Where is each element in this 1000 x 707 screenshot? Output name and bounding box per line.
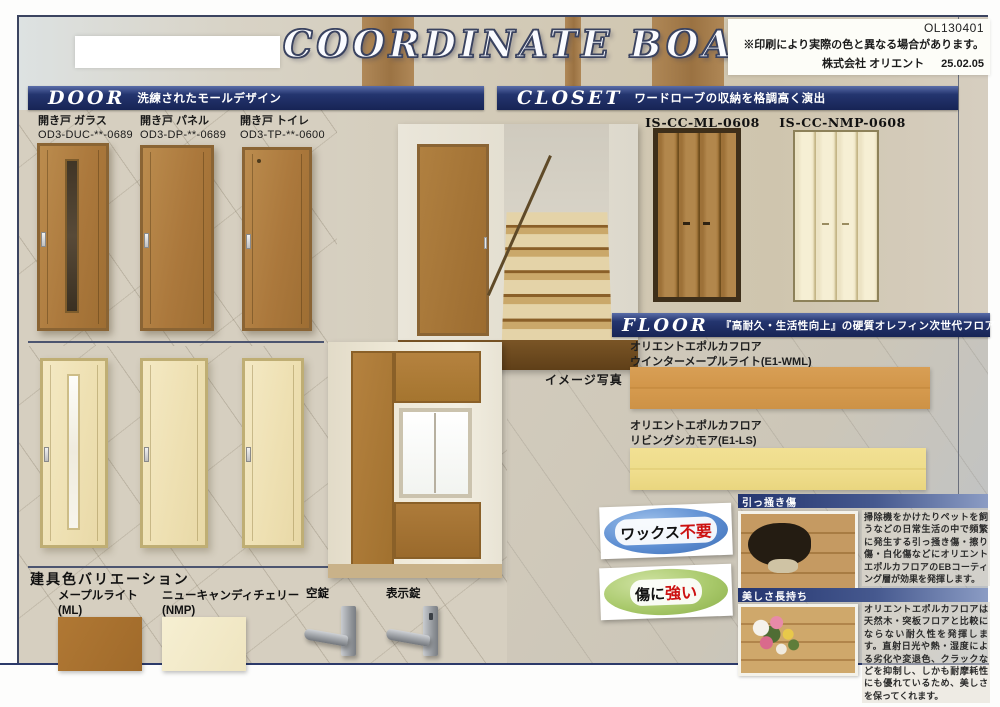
feature-text-scratch: 掃除機をかけたりペットを飼うなどの日常生活の中で頻繁に発生する引っ掻き傷・擦り傷…	[862, 510, 990, 586]
feature-header-scratch: 引っ掻き傷	[738, 494, 988, 508]
indicator-lock-handle	[382, 606, 446, 670]
door-handle	[44, 447, 49, 462]
door-rows-divider	[28, 341, 324, 343]
closet-photo-nmp	[793, 130, 879, 302]
header-info-box: OL130401 ※印刷により実際の色と異なる場合があります。 株式会社 オリエ…	[728, 19, 990, 75]
hallway-stairs-photo	[398, 124, 638, 370]
closet-photo-ml	[653, 128, 741, 302]
floor-section-header: FLOOR 『高耐久・生活性向上』の硬質オレフィン次世代フロア	[612, 313, 990, 337]
door-molding	[252, 365, 294, 541]
photo-cabinet-tall	[351, 351, 395, 568]
variation-title: 建具色バリエーション	[30, 569, 190, 589]
door-photo-glass-ml	[37, 143, 109, 331]
door-product-label: 開き戸 トイレ OD3-TP-**-0600	[240, 115, 325, 143]
photo-door	[417, 144, 489, 336]
swatch-label-ml: メープルライト (ML)	[58, 589, 138, 619]
feature-text-beauty: オリエントエポルカフロアは天然木・突板フロアと比較にならない耐久性を発揮します。…	[862, 602, 990, 703]
blank-logo-box	[75, 36, 280, 68]
photo-door-handle	[484, 237, 487, 249]
floor-product-label: オリエントエポルカフロア ウインターメープルライト(E1-WML)	[630, 340, 812, 370]
coordinate-board: COORDINATE BOARD OL130401 ※印刷により実際の色と異なる…	[0, 0, 1000, 707]
flowers-on-floor-photo	[738, 604, 858, 676]
lock-indicator-window	[429, 613, 433, 620]
floor-section-title: FLOOR	[622, 315, 709, 336]
frame-left-rule	[17, 15, 19, 665]
document-date: 25.02.05	[941, 58, 984, 70]
door-product-label: 開き戸 ガラス OD3-DUC-**-0689	[38, 115, 133, 143]
badge-oval: ワックス不要	[603, 506, 729, 556]
dog-on-floor-photo	[738, 511, 858, 595]
document-code: OL130401	[734, 21, 984, 35]
closet-section-title: CLOSET	[517, 87, 622, 109]
door-handle	[144, 447, 149, 462]
feature-header-beauty: 美しさ長持ち	[738, 588, 988, 602]
photo-floor	[328, 564, 502, 578]
door-photo-glass-nmp	[40, 358, 108, 548]
color-swatch-ml	[58, 617, 142, 671]
frame-top-rule	[17, 15, 988, 17]
closet-section-subtitle: ワードローブの収納を格調高く演出	[634, 90, 825, 106]
door-molding	[252, 154, 302, 324]
lock-label-indicator: 表示錠	[386, 587, 421, 602]
floor-sample-wml	[630, 367, 930, 409]
door-photo-panel-ml	[140, 145, 214, 331]
door-photo-panel-nmp	[140, 358, 208, 548]
closet-section-header: CLOSET ワードローブの収納を格調高く演出	[497, 86, 958, 110]
lock-label-passage: 空錠	[306, 587, 329, 602]
floor-product-label: オリエントエポルカフロア リビングシカモア(E1-LS)	[630, 419, 762, 449]
door-section-title: DOOR	[48, 87, 125, 109]
photo-stairs	[501, 212, 612, 359]
badge-text: 傷に強い	[630, 578, 703, 606]
closet-handle	[683, 222, 690, 225]
floor-section-subtitle: 『高耐久・生活性向上』の硬質オレフィン次世代フロア	[721, 318, 996, 333]
cabinet-photo	[328, 342, 502, 578]
print-disclaimer: ※印刷により実際の色と異なる場合があります。	[734, 36, 984, 52]
company-name: 株式会社 オリエント	[822, 58, 924, 70]
door-handle	[246, 447, 251, 462]
floor-sample-ls	[630, 448, 926, 490]
closet-handle	[703, 222, 710, 225]
photo-edge-line	[958, 16, 959, 498]
door-photo-toilet-nmp	[242, 358, 304, 548]
door-section-subtitle: 洗練されたモールデザイン	[137, 90, 281, 106]
door-glass-strip	[65, 159, 79, 314]
image-photo-caption: イメージ写真	[545, 371, 623, 388]
door-handle	[144, 233, 149, 248]
door-product-label: 開き戸 パネル OD3-DP-**-0689	[140, 115, 226, 143]
photo-window-sash	[434, 413, 436, 493]
door-section-header: DOOR 洗練されたモールデザイン	[28, 86, 484, 110]
photo-cabinet-lower	[394, 502, 481, 559]
toilet-lock-dot	[257, 159, 261, 163]
closet-product-code: IS-CC-NMP-0608	[775, 115, 910, 130]
scratch-resistant-badge: 傷に強い	[599, 564, 733, 621]
closet-handle	[822, 223, 829, 225]
badge-text: ワックス不要	[615, 516, 717, 546]
door-handle	[41, 232, 46, 247]
company-line: 株式会社 オリエント 25.02.05	[734, 55, 984, 71]
photo-dog-paws	[768, 559, 798, 573]
wax-free-badge: ワックス不要	[599, 503, 733, 560]
color-swatch-nmp	[162, 617, 246, 671]
door-handle	[246, 234, 251, 249]
closet-bifold-doors	[658, 133, 736, 297]
lock-plate	[341, 606, 356, 656]
swatch-label-nmp: ニューキャンディチェリー (NMP)	[162, 589, 299, 619]
door-molding	[150, 152, 204, 324]
door-photo-toilet-ml	[242, 147, 312, 331]
closet-bifold-doors	[795, 132, 877, 300]
photo-flowers	[746, 612, 814, 665]
badge-oval: 傷に強い	[603, 567, 729, 617]
passage-lock-handle	[300, 606, 364, 670]
photo-cabinet-upper	[394, 351, 481, 403]
door-glass-strip	[67, 374, 80, 530]
closet-handle	[842, 223, 849, 225]
door-molding	[150, 365, 198, 541]
